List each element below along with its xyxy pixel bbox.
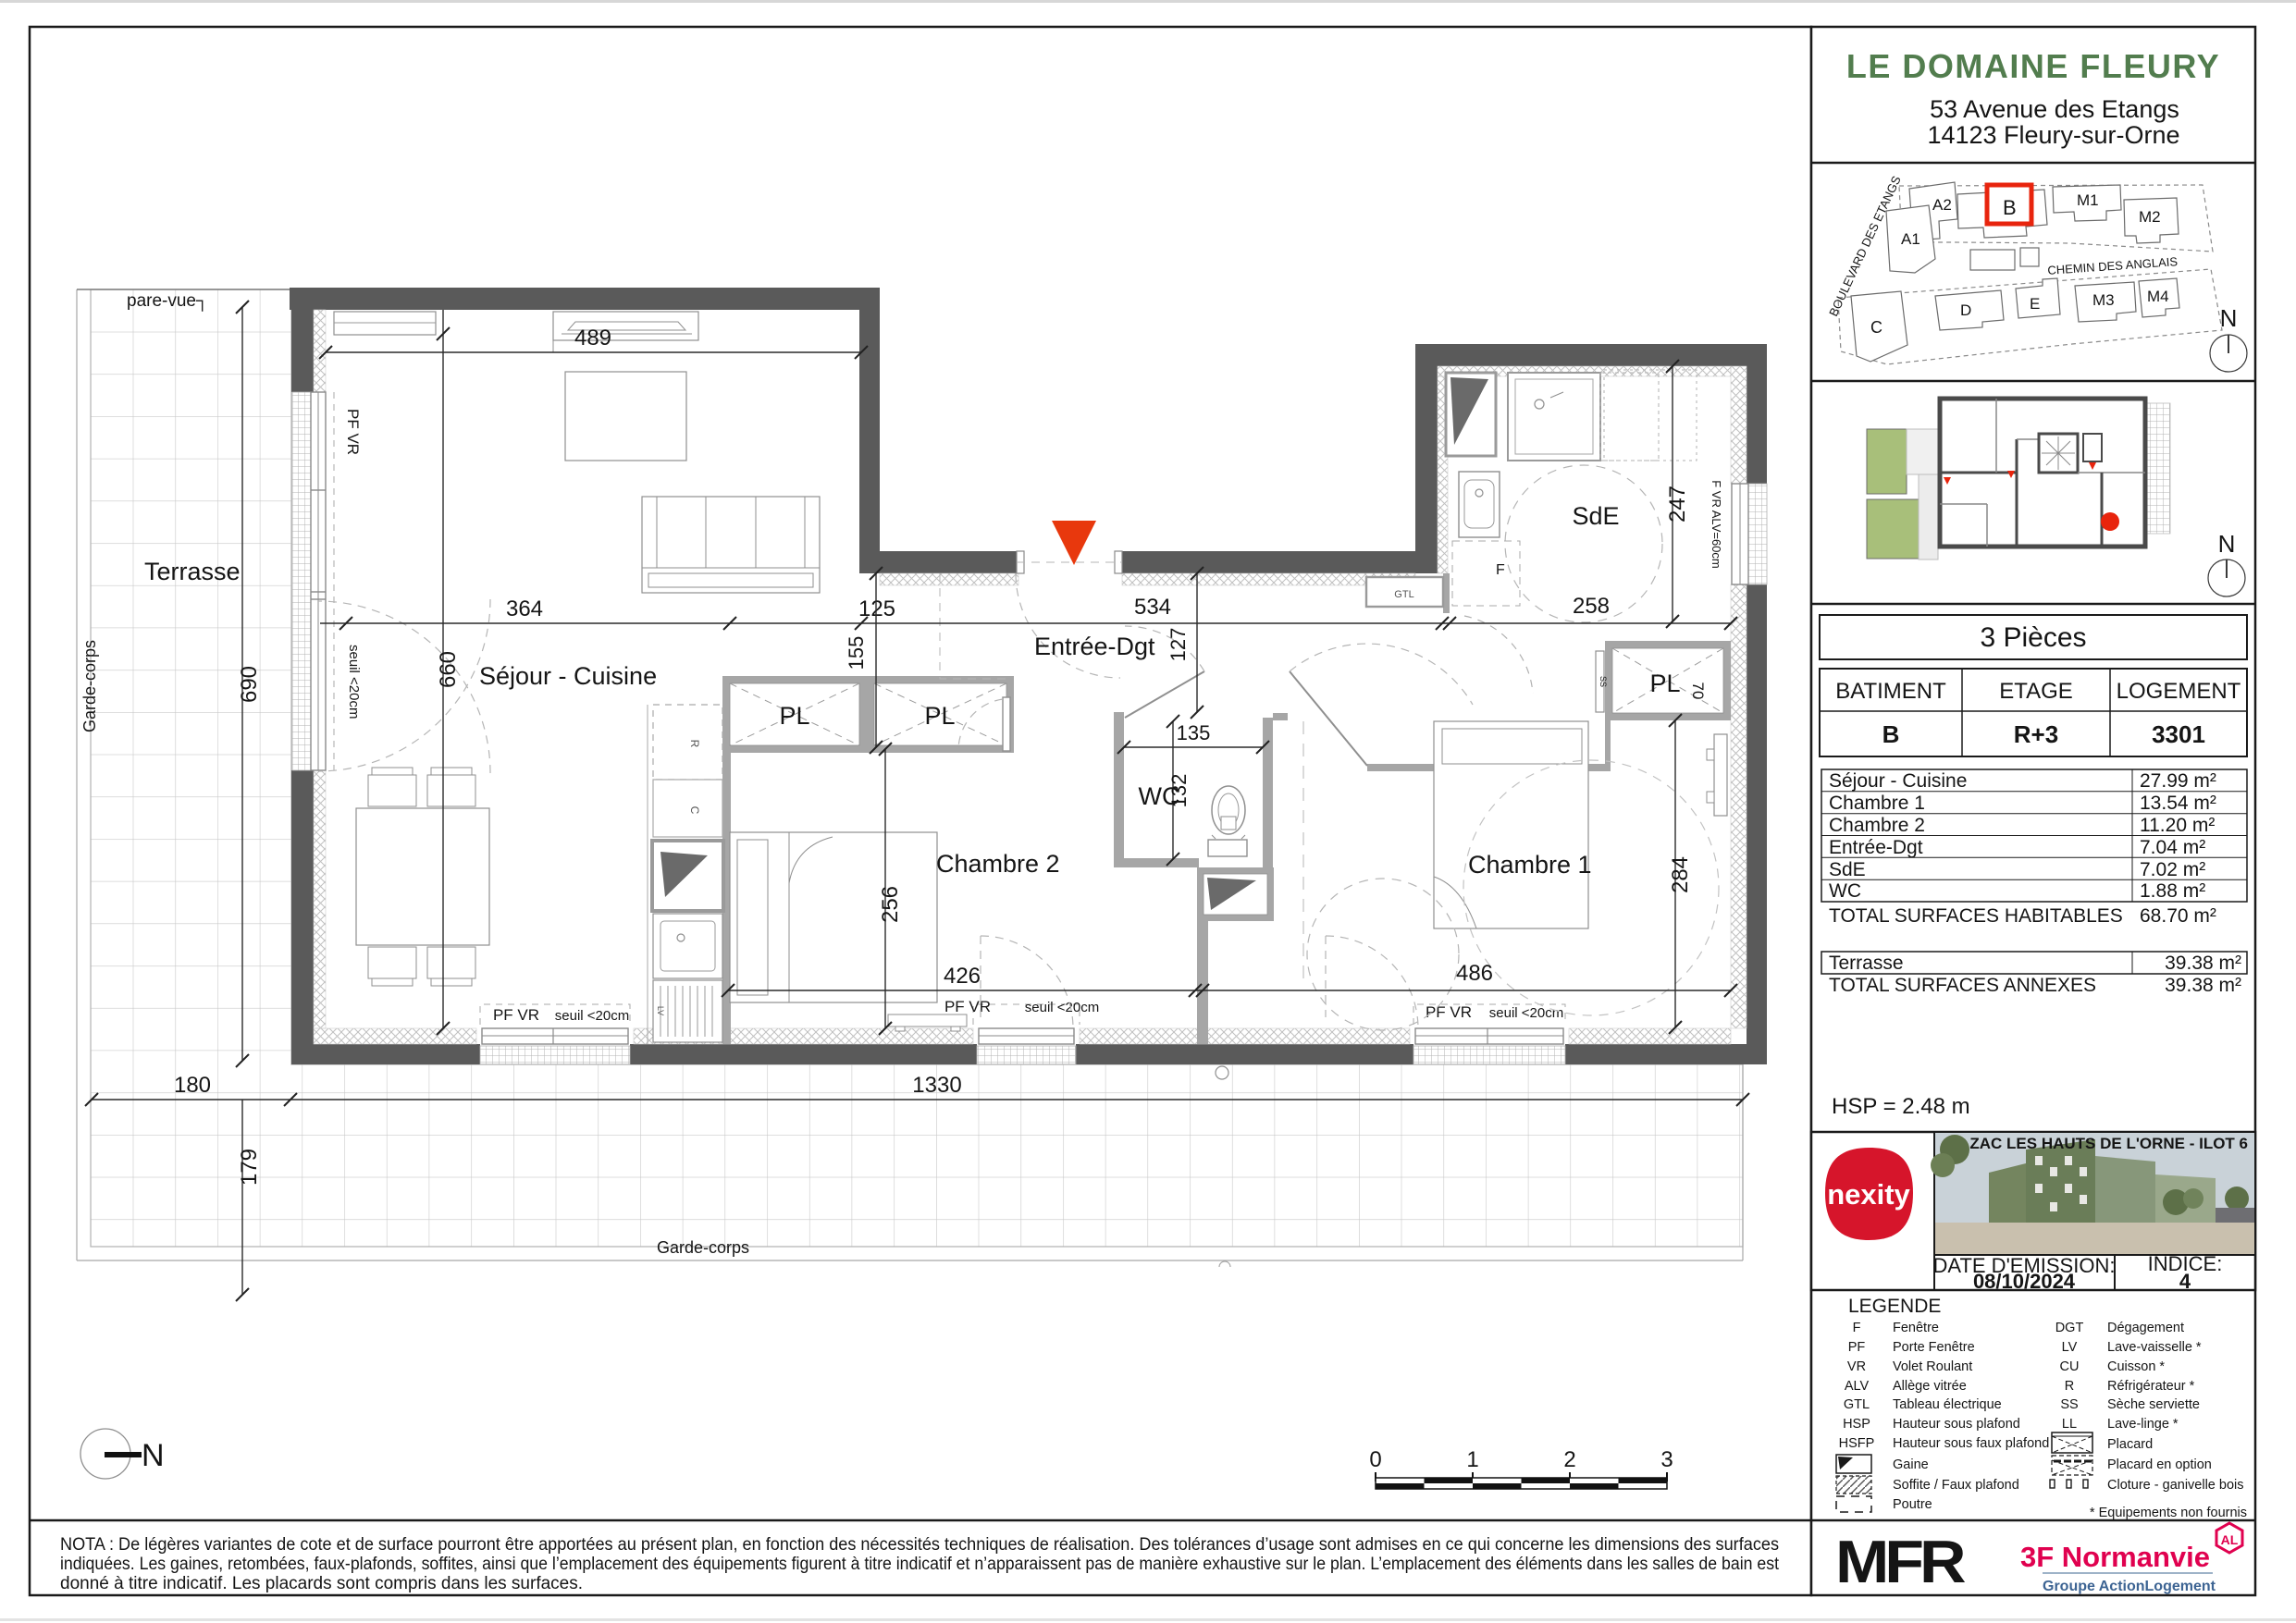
svg-text:TOTAL SURFACES HABITABLES: TOTAL SURFACES HABITABLES [1829, 905, 2123, 927]
svg-text:Entrée-Dgt: Entrée-Dgt [1829, 837, 1923, 858]
svg-text:F: F [1496, 562, 1505, 578]
svg-text:Garde-corps: Garde-corps [80, 640, 99, 732]
svg-text:D: D [1960, 301, 1971, 319]
svg-text:Soffite / Faux plafond: Soffite / Faux plafond [1893, 1478, 2019, 1493]
svg-text:R: R [2065, 1379, 2074, 1394]
svg-text:179: 179 [237, 1149, 262, 1186]
svg-text:Garde-corps: Garde-corps [657, 1238, 749, 1257]
svg-text:534: 534 [1134, 595, 1171, 620]
svg-text:39.38 m²: 39.38 m² [2165, 953, 2241, 974]
svg-text:39.38 m²: 39.38 m² [2165, 975, 2241, 996]
svg-text:pare-vue┐: pare-vue┐ [127, 291, 208, 312]
svg-text:ZAC LES HAUTS DE L'ORNE - ILOT: ZAC LES HAUTS DE L'ORNE - ILOT 6 [1969, 1135, 2248, 1152]
svg-text:Hauteur sous plafond: Hauteur sous plafond [1893, 1417, 2020, 1432]
svg-text:GTL: GTL [1394, 589, 1413, 600]
svg-text:Fenêtre: Fenêtre [1893, 1321, 1939, 1335]
svg-text:C: C [1870, 318, 1882, 337]
svg-text:SdE: SdE [1572, 502, 1619, 530]
svg-text:Cloture - ganivelle bois: Cloture - ganivelle bois [2107, 1478, 2244, 1493]
svg-text:TOTAL SURFACES ANNEXES: TOTAL SURFACES ANNEXES [1829, 975, 2096, 996]
svg-text:3F Normanvie: 3F Normanvie [2020, 1541, 2210, 1573]
svg-text:Réfrigérateur *: Réfrigérateur * [2107, 1379, 2195, 1394]
svg-text:ETAGE: ETAGE [1999, 679, 2073, 704]
svg-text:Chambre 2: Chambre 2 [936, 850, 1060, 878]
svg-text:13.54 m²: 13.54 m² [2140, 793, 2216, 814]
svg-text:seuil <20cm: seuil <20cm [555, 1008, 629, 1024]
svg-text:27.99 m²: 27.99 m² [2140, 770, 2216, 792]
svg-text:7.04 m²: 7.04 m² [2140, 837, 2205, 858]
svg-text:155: 155 [845, 636, 868, 670]
svg-text:N: N [2218, 530, 2236, 558]
svg-text:M2: M2 [2139, 208, 2161, 226]
svg-text:486: 486 [1456, 961, 1493, 986]
svg-text:53 Avenue des Etangs: 53 Avenue des Etangs [1930, 95, 2179, 123]
svg-text:Dégagement: Dégagement [2107, 1321, 2184, 1335]
svg-text:70: 70 [1689, 682, 1707, 700]
svg-text:N: N [2220, 304, 2238, 332]
svg-text:SdE: SdE [1829, 859, 1866, 880]
svg-text:1.88 m²: 1.88 m² [2140, 880, 2205, 902]
svg-text:donné à titre indicatif. Les p: donné à titre indicatif. Les placards so… [60, 1574, 583, 1593]
svg-text:R+3: R+3 [2014, 720, 2058, 748]
svg-text:PF VR: PF VR [1426, 1003, 1472, 1021]
svg-text:HSP = 2.48 m: HSP = 2.48 m [1832, 1094, 1970, 1119]
svg-text:Placard en option: Placard en option [2107, 1457, 2212, 1472]
svg-text:Terrasse: Terrasse [144, 558, 241, 585]
svg-text:Gaine: Gaine [1893, 1457, 1929, 1472]
svg-text:VR: VR [1847, 1359, 1866, 1374]
svg-text:LL: LL [2062, 1417, 2077, 1432]
svg-text:M1: M1 [2077, 191, 2099, 209]
svg-text:489: 489 [574, 326, 611, 350]
svg-text:B: B [2003, 196, 2017, 219]
svg-text:132: 132 [1167, 774, 1191, 808]
svg-text:Chambre 2: Chambre 2 [1829, 815, 1925, 836]
svg-text:C: C [688, 806, 701, 815]
svg-text:Chambre 1: Chambre 1 [1829, 793, 1925, 814]
svg-text:Groupe ActionLogement: Groupe ActionLogement [2043, 1579, 2216, 1594]
svg-text:LEGENDE: LEGENDE [1848, 1296, 1941, 1317]
svg-text:N: N [142, 1438, 165, 1473]
svg-text:LOGEMENT: LOGEMENT [2117, 679, 2241, 704]
svg-text:Placard: Placard [2107, 1437, 2153, 1452]
svg-text:14123 Fleury-sur-Orne: 14123 Fleury-sur-Orne [1927, 121, 2179, 149]
svg-text:Terrasse: Terrasse [1829, 953, 1904, 974]
svg-text:7.02 m²: 7.02 m² [2140, 859, 2205, 880]
svg-text:Allège vitrée: Allège vitrée [1893, 1379, 1967, 1394]
svg-text:Lave-vaisselle *: Lave-vaisselle * [2107, 1340, 2202, 1355]
svg-text:HSP: HSP [1843, 1417, 1870, 1432]
svg-text:PL: PL [1649, 670, 1680, 697]
svg-text:F: F [1853, 1321, 1861, 1335]
svg-text:Hauteur sous faux plafond: Hauteur sous faux plafond [1893, 1436, 2049, 1451]
svg-text:AL: AL [2221, 1532, 2239, 1547]
svg-text:PF: PF [1848, 1340, 1866, 1355]
svg-text:A1: A1 [1901, 230, 1920, 248]
svg-text:4: 4 [2179, 1270, 2191, 1293]
svg-text:Séjour - Cuisine: Séjour - Cuisine [1829, 770, 1967, 792]
svg-text:PF VR: PF VR [944, 998, 991, 1015]
svg-text:426: 426 [944, 964, 981, 989]
svg-text:SS: SS [1599, 676, 1608, 687]
svg-text:M4: M4 [2147, 288, 2169, 305]
svg-text:08/10/2024: 08/10/2024 [1973, 1270, 2076, 1293]
svg-text:seuil <20cm: seuil <20cm [1489, 1005, 1563, 1021]
svg-text:68.70 m²: 68.70 m² [2140, 905, 2216, 927]
svg-text:Poutre: Poutre [1893, 1497, 1932, 1512]
svg-text:WC: WC [1829, 880, 1861, 902]
svg-text:Tableau électrique: Tableau électrique [1893, 1397, 2002, 1412]
svg-text:364: 364 [506, 596, 543, 621]
svg-text:1: 1 [1466, 1447, 1478, 1472]
svg-text:0: 0 [1369, 1447, 1381, 1472]
svg-text:PF VR: PF VR [344, 409, 362, 455]
svg-text:LV: LV [2062, 1340, 2078, 1355]
svg-text:Chambre 1: Chambre 1 [1468, 851, 1592, 879]
svg-text:seuil <20cm: seuil <20cm [1025, 1000, 1099, 1015]
svg-text:CU: CU [2060, 1359, 2080, 1374]
svg-text:127: 127 [1167, 628, 1190, 662]
svg-text:* Equipements non fournis: * Equipements non fournis [2090, 1506, 2247, 1520]
svg-text:BATIMENT: BATIMENT [1835, 679, 1946, 704]
svg-text:3: 3 [1660, 1447, 1673, 1472]
svg-text:247: 247 [1665, 486, 1690, 523]
svg-text:B: B [1882, 720, 1900, 748]
svg-text:MFR: MFR [1835, 1529, 1966, 1595]
svg-text:660: 660 [436, 651, 461, 688]
svg-text:690: 690 [237, 666, 262, 703]
svg-text:HSFP: HSFP [1839, 1436, 1875, 1451]
svg-text:ALV: ALV [1845, 1379, 1870, 1394]
svg-text:135: 135 [1177, 721, 1211, 744]
svg-text:LE DOMAINE FLEURY: LE DOMAINE FLEURY [1846, 47, 2220, 85]
svg-text:2: 2 [1563, 1447, 1575, 1472]
svg-text:LV: LV [656, 1006, 665, 1015]
svg-text:3301: 3301 [2152, 720, 2205, 748]
svg-text:Cuisson *: Cuisson * [2107, 1359, 2165, 1374]
svg-text:258: 258 [1573, 594, 1610, 619]
svg-text:GTL: GTL [1844, 1397, 1870, 1412]
svg-text:A2: A2 [1932, 196, 1952, 214]
svg-text:SS: SS [2060, 1397, 2078, 1412]
svg-text:Porte Fenêtre: Porte Fenêtre [1893, 1340, 1975, 1355]
svg-text:F VR ALV=60cm: F VR ALV=60cm [1710, 480, 1723, 569]
svg-text:11.20 m²: 11.20 m² [2140, 815, 2215, 836]
svg-text:256: 256 [878, 886, 903, 923]
svg-text:DGT: DGT [2055, 1321, 2084, 1335]
svg-text:indiquées. Les gaines, retombé: indiquées. Les gaines, retombées, faux-p… [60, 1555, 1780, 1574]
svg-text:1330: 1330 [912, 1073, 961, 1098]
svg-text:Sèche serviette: Sèche serviette [2107, 1397, 2200, 1412]
svg-text:PL: PL [924, 702, 955, 730]
svg-text:seuil <20cm: seuil <20cm [346, 645, 362, 719]
svg-text:PF VR: PF VR [493, 1006, 539, 1024]
svg-text:Séjour - Cuisine: Séjour - Cuisine [479, 662, 657, 690]
svg-text:PL: PL [779, 702, 809, 730]
svg-text:180: 180 [174, 1073, 211, 1098]
svg-text:R: R [688, 740, 701, 748]
svg-text:3 Pièces: 3 Pièces [1980, 622, 2086, 653]
svg-text:E: E [2030, 295, 2040, 313]
svg-text:Lave-linge *: Lave-linge * [2107, 1417, 2179, 1432]
svg-text:Entrée-Dgt: Entrée-Dgt [1034, 633, 1155, 660]
svg-text:NOTA : De légères variantes de: NOTA : De légères variantes de cote et d… [60, 1535, 1779, 1555]
svg-text:M3: M3 [2092, 291, 2115, 309]
svg-text:Volet Roulant: Volet Roulant [1893, 1359, 1972, 1374]
svg-text:284: 284 [1668, 856, 1693, 893]
svg-text:nexity: nexity [1827, 1178, 1910, 1211]
svg-text:125: 125 [858, 596, 895, 621]
